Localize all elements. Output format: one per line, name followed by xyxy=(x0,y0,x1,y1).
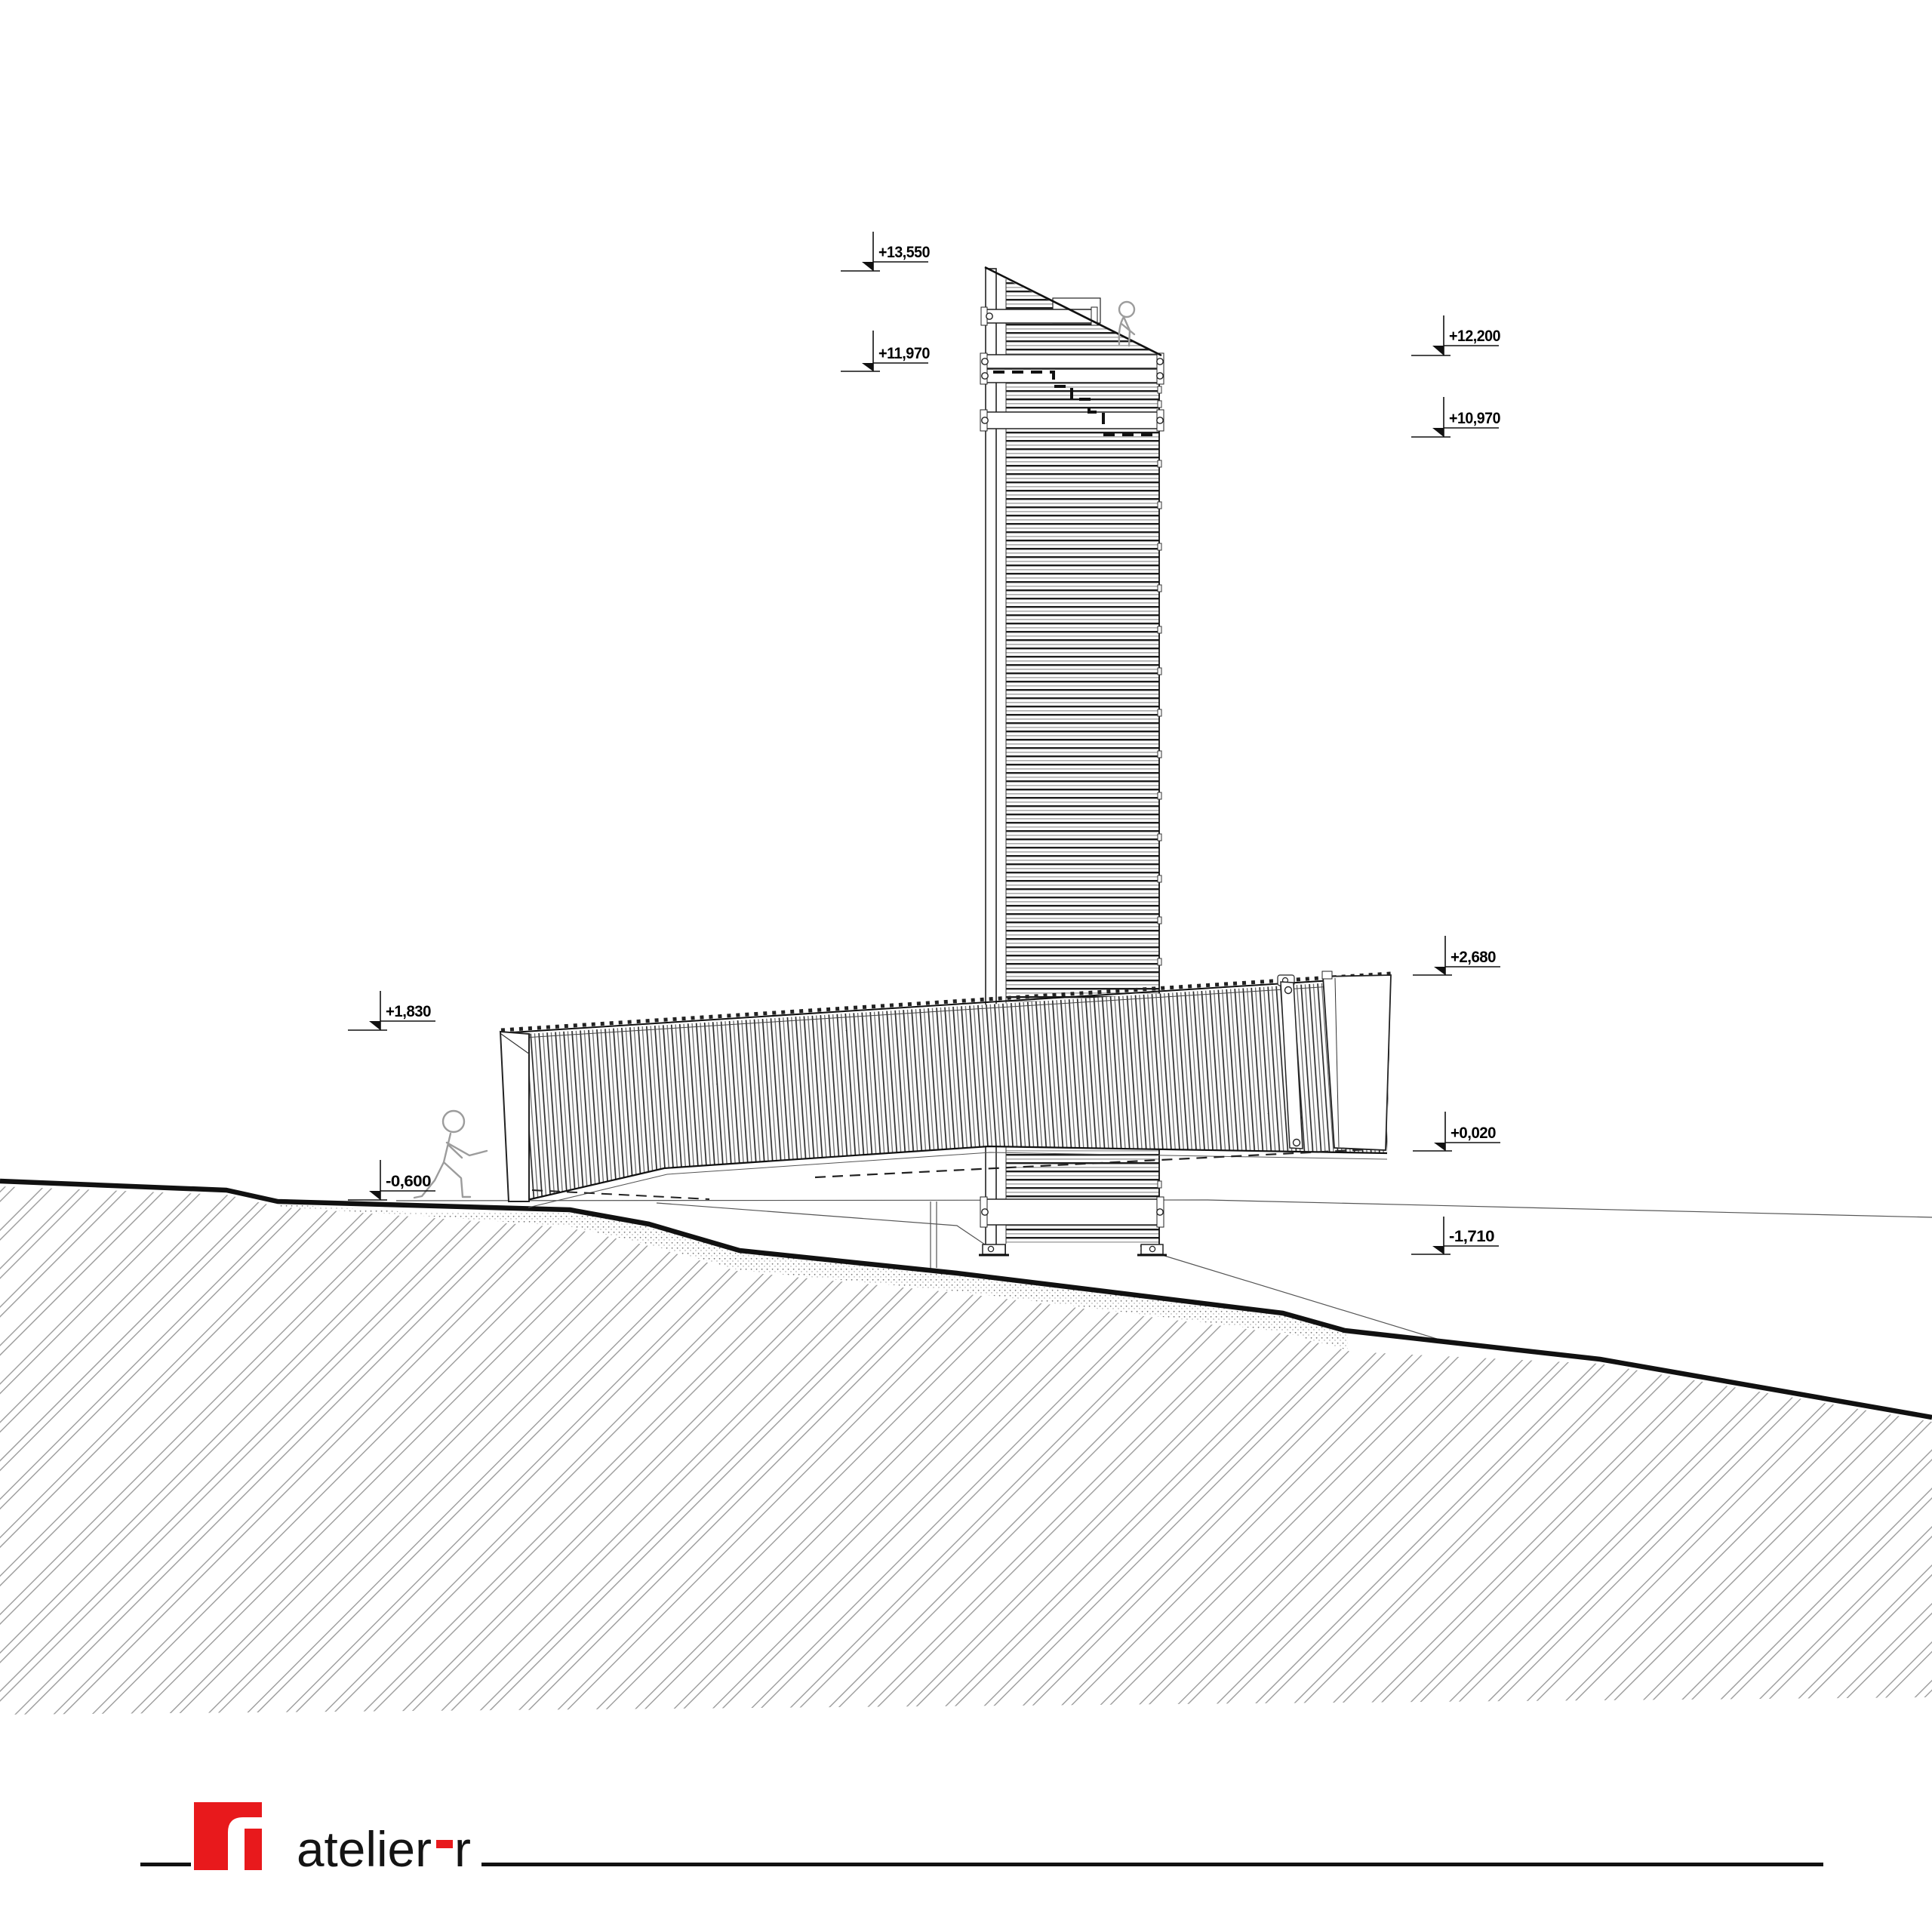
soil-hatch-area xyxy=(0,1186,1932,1715)
elevation-marker-0020: +0,020 xyxy=(1413,1112,1500,1151)
level-label: +10,970 xyxy=(1449,410,1500,427)
ramp-tip-panel xyxy=(1322,971,1391,1150)
tower-band-top xyxy=(981,307,1097,325)
elevation-marker-13550: +13,550 xyxy=(841,232,930,271)
level-label: -1,710 xyxy=(1449,1228,1494,1245)
ramp-slat-balustrade xyxy=(502,979,1391,1201)
elevation-marker-minus-1710: -1,710 xyxy=(1411,1217,1499,1254)
level-label: -0,600 xyxy=(386,1173,431,1190)
architectural-elevation-sheet: +13,550 +11,970 +12,200 +10,970 +2,680 +… xyxy=(0,0,1932,1932)
elevation-drawing: +13,550 +11,970 +12,200 +10,970 +2,680 +… xyxy=(0,0,1932,1932)
hidden-ground-line xyxy=(532,1190,709,1199)
elevation-marker-11970: +11,970 xyxy=(841,331,930,371)
support-pile xyxy=(931,1201,937,1269)
ramp-entry-post xyxy=(500,1032,530,1201)
title-block: atelier r xyxy=(140,1802,1823,1877)
tower-band-base xyxy=(980,1197,1164,1227)
tower-foundation xyxy=(979,1244,1167,1255)
logo-dash xyxy=(436,1840,453,1848)
level-label: +1,830 xyxy=(386,1003,431,1020)
elevation-marker-minus-0600: -0,600 xyxy=(348,1160,435,1200)
title-rule-left xyxy=(140,1863,191,1866)
level-label: +11,970 xyxy=(878,345,930,362)
elevation-marker-10970: +10,970 xyxy=(1411,397,1500,437)
elevation-marker-1830: +1,830 xyxy=(348,991,435,1030)
atelier-r-logo xyxy=(194,1802,263,1870)
level-label: +12,200 xyxy=(1449,328,1500,345)
level-label: +0,020 xyxy=(1451,1124,1496,1142)
tower-band-mid xyxy=(980,410,1164,431)
terrain-section xyxy=(0,1181,1932,1715)
logo-wordmark-suffix: r xyxy=(454,1821,471,1877)
logo-wordmark: atelier xyxy=(297,1821,432,1877)
level-label: +13,550 xyxy=(878,244,930,261)
elevation-marker-12200: +12,200 xyxy=(1411,315,1500,355)
title-rule-right xyxy=(481,1863,1823,1866)
access-ramp xyxy=(500,971,1391,1207)
level-label: +2,680 xyxy=(1451,949,1496,966)
tower-band-upper-pair xyxy=(980,353,1164,384)
elevation-marker-2680: +2,680 xyxy=(1413,936,1500,975)
